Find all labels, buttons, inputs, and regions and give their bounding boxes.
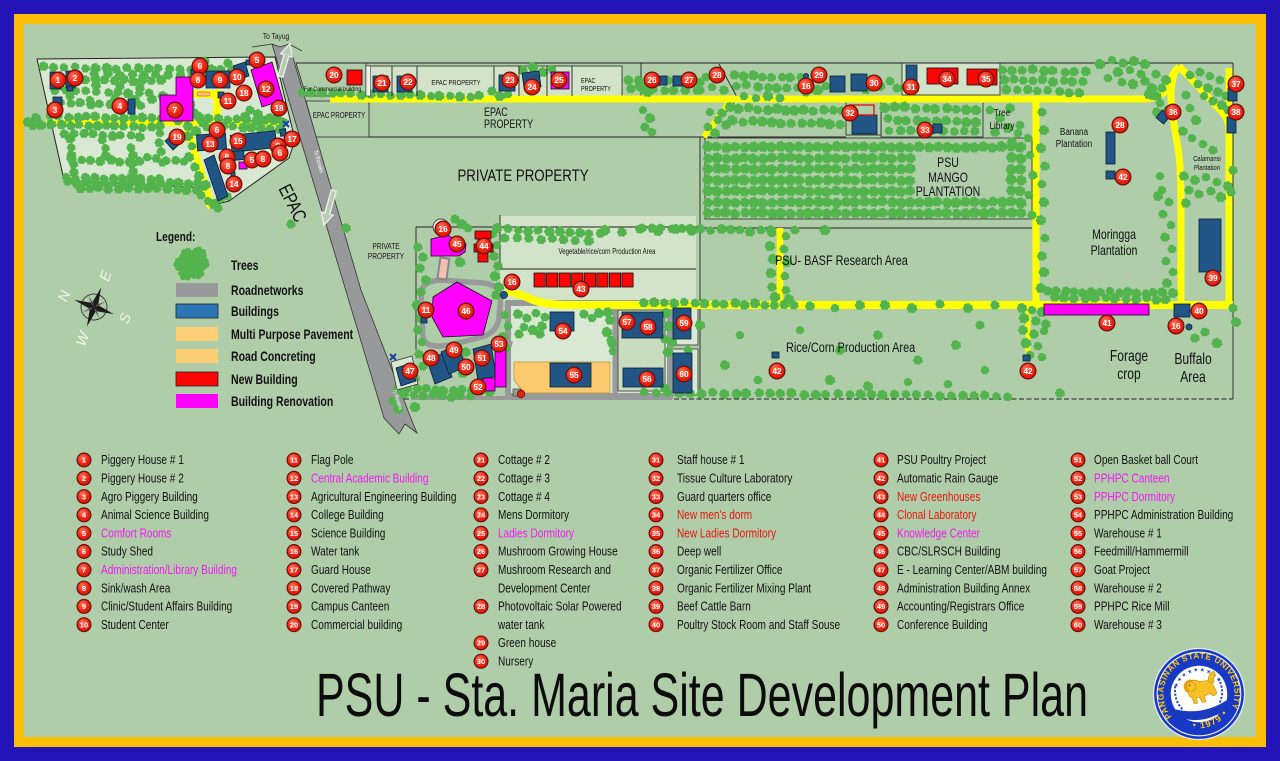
svg-text:6: 6 [215,125,220,135]
svg-text:PPHPC Rice Mill: PPHPC Rice Mill [1094,601,1169,614]
svg-text:3: 3 [82,492,86,501]
svg-text:5: 5 [250,155,255,165]
svg-text:56: 56 [1074,547,1082,556]
svg-text:Deep well: Deep well [677,546,721,559]
svg-text:Student Center: Student Center [101,619,169,632]
svg-text:Science Building: Science Building [311,527,385,540]
svg-text:32: 32 [845,108,855,118]
svg-text:35: 35 [652,529,661,538]
svg-text:56: 56 [642,374,652,384]
svg-text:28: 28 [477,602,485,611]
svg-text:34: 34 [652,511,661,520]
svg-text:Roadnetworks: Roadnetworks [231,283,304,299]
svg-text:Moringga: Moringga [1092,227,1136,243]
svg-text:29: 29 [477,639,485,648]
svg-text:42: 42 [1118,172,1128,182]
svg-text:38: 38 [652,584,660,593]
svg-text:Clinic/Student Affairs Buildin: Clinic/Student Affairs Building [101,601,232,614]
svg-text:PPHPC Dormitory: PPHPC Dormitory [1094,491,1175,504]
svg-text:16: 16 [290,547,298,556]
svg-text:Warehouse # 2: Warehouse # 2 [1094,582,1162,595]
svg-text:33: 33 [652,492,660,501]
svg-text:57: 57 [1074,566,1082,575]
svg-text:8: 8 [196,75,201,85]
svg-text:47: 47 [877,566,885,575]
svg-text:45: 45 [877,529,886,538]
svg-text:Tree: Tree [994,106,1011,118]
svg-text:PROPERTY: PROPERTY [581,85,612,93]
svg-text:37: 37 [1231,79,1241,89]
svg-text:Agricultural Engineering Build: Agricultural Engineering Building [311,491,456,504]
svg-text:37: 37 [652,566,660,575]
svg-text:15: 15 [233,136,243,146]
svg-text:Piggery House # 2: Piggery House # 2 [101,473,184,486]
svg-text:Plantation: Plantation [1194,164,1220,172]
svg-text:Vegetable/rice/corn Production: Vegetable/rice/corn Production Area [559,248,656,256]
svg-text:50: 50 [461,362,471,372]
svg-text:26: 26 [477,547,485,556]
svg-text:58: 58 [1074,584,1082,593]
svg-text:water tank: water tank [497,619,545,632]
svg-text:4: 4 [118,101,123,111]
svg-text:Rice/Corn Production Area: Rice/Corn Production Area [786,340,915,356]
svg-text:36: 36 [652,547,660,556]
svg-text:College Building: College Building [311,509,384,522]
svg-text:PSU - Sta. Maria Site Developm: PSU - Sta. Maria Site Development Plan [316,661,1088,729]
svg-text:2: 2 [73,73,78,83]
svg-text:Staff house # 1: Staff house # 1 [677,454,745,467]
svg-text:Mushroom Research and: Mushroom Research and [498,564,611,577]
svg-text:5: 5 [255,55,260,65]
svg-text:PLANTATION: PLANTATION [916,184,980,200]
svg-text:Campus Canteen: Campus Canteen [311,601,389,614]
svg-text:Animal Science Building: Animal Science Building [101,509,209,522]
svg-text:EPAC: EPAC [484,107,508,119]
svg-text:39: 39 [1208,273,1218,283]
svg-text:42: 42 [877,474,885,483]
svg-text:PROPERTY: PROPERTY [484,119,533,131]
svg-text:Covered Pathway: Covered Pathway [311,582,391,595]
svg-text:20: 20 [329,70,339,80]
svg-text:Piggery House # 1: Piggery House # 1 [101,454,184,467]
svg-text:24: 24 [477,511,486,520]
svg-text:PRIVATE: PRIVATE [372,241,399,251]
svg-text:28: 28 [712,70,722,80]
svg-text:Central Academic Building: Central Academic Building [311,473,428,486]
svg-text:17: 17 [290,566,298,575]
svg-text:Sink/wash Area: Sink/wash Area [101,582,171,595]
svg-text:Green house: Green house [498,637,556,650]
svg-text:New Building: New Building [231,372,298,388]
svg-text:Organic Fertilizer Office: Organic Fertilizer Office [677,564,783,577]
svg-text:12: 12 [290,474,298,483]
svg-text:6: 6 [82,547,86,556]
svg-text:7: 7 [82,566,86,575]
svg-text:15: 15 [290,529,299,538]
svg-text:Road Concreting: Road Concreting [231,349,316,365]
svg-text:13: 13 [290,492,298,501]
svg-text:PRIVATE PROPERTY: PRIVATE PROPERTY [457,167,588,186]
svg-text:48: 48 [426,353,436,363]
svg-text:8: 8 [261,154,266,164]
svg-text:55: 55 [569,370,579,380]
svg-text:E - Learning Center/ABM buildi: E - Learning Center/ABM building [897,564,1047,577]
svg-text:Commercial building: Commercial building [311,619,402,632]
svg-text:Administration/Library Buildin: Administration/Library Building [101,564,237,577]
svg-text:3: 3 [53,105,58,115]
svg-text:Comfort Rooms: Comfort Rooms [101,527,172,540]
svg-text:32: 32 [652,474,660,483]
svg-text:Guard quarters office: Guard quarters office [677,491,771,504]
svg-text:42: 42 [1023,366,1033,376]
svg-text:CBC/SLRSCH Building: CBC/SLRSCH Building [897,546,1000,559]
svg-text:16: 16 [507,277,517,287]
svg-text:Building Renovation: Building Renovation [231,394,333,410]
svg-text:Warehouse # 3: Warehouse # 3 [1094,619,1162,632]
svg-text:28: 28 [1115,120,1125,130]
svg-text:48: 48 [877,584,885,593]
svg-text:Cottage # 2: Cottage # 2 [498,454,550,467]
svg-text:53: 53 [1074,492,1082,501]
svg-text:PPHPC Canteen: PPHPC Canteen [1094,473,1170,486]
svg-text:New Ladies Dormitory: New Ladies Dormitory [677,527,776,540]
svg-text:35: 35 [981,74,991,84]
svg-text:Goat Project: Goat Project [1094,564,1151,577]
svg-text:44: 44 [479,241,489,251]
svg-text:20: 20 [290,620,298,629]
svg-text:25: 25 [477,529,486,538]
svg-text:Cottage # 3: Cottage # 3 [498,473,550,486]
svg-text:34: 34 [942,74,952,84]
svg-text:52: 52 [1074,474,1082,483]
svg-text:6: 6 [278,148,283,158]
svg-text:Photovoltaic Solar Powered: Photovoltaic Solar Powered [498,601,622,614]
svg-text:Conference Building: Conference Building [897,619,988,632]
svg-text:26: 26 [647,75,657,85]
svg-text:Feedmill/Hammermill: Feedmill/Hammermill [1094,546,1189,559]
svg-text:19: 19 [290,602,298,611]
svg-text:22: 22 [477,474,485,483]
svg-text:40: 40 [652,620,660,629]
svg-text:18: 18 [290,584,298,593]
svg-text:55: 55 [1074,529,1083,538]
svg-text:60: 60 [679,369,689,379]
svg-text:Knowledge Center: Knowledge Center [897,527,980,540]
svg-text:Automatic Rain Gauge: Automatic Rain Gauge [897,473,998,486]
svg-text:Buildings: Buildings [231,304,279,320]
svg-text:41: 41 [1102,318,1112,328]
svg-text:10: 10 [80,620,88,629]
svg-text:41: 41 [877,456,886,465]
svg-text:New Greenhouses: New Greenhouses [897,491,981,504]
svg-text:38: 38 [1231,107,1241,117]
svg-text:16: 16 [438,224,448,234]
svg-text:42: 42 [772,366,782,376]
svg-text:51: 51 [1074,456,1083,465]
svg-text:45: 45 [452,239,462,249]
svg-text:60: 60 [1074,620,1082,629]
svg-text:24: 24 [527,82,537,92]
svg-text:Plantation: Plantation [1056,137,1092,149]
svg-text:46: 46 [461,306,471,316]
svg-text:11: 11 [290,456,299,465]
svg-text:43: 43 [576,284,586,294]
svg-text:Water tank: Water tank [311,546,360,559]
svg-text:PPHPC Administration Building: PPHPC Administration Building [1094,509,1233,522]
svg-text:53: 53 [494,339,504,349]
svg-text:31: 31 [652,456,661,465]
svg-text:13: 13 [205,139,215,149]
svg-text:49: 49 [449,345,459,355]
svg-text:Mushroom Growing House: Mushroom Growing House [498,546,618,559]
svg-text:Development Center: Development Center [498,582,590,595]
svg-text:Cottage # 4: Cottage # 4 [498,491,550,504]
svg-text:To Tayug: To Tayug [263,31,289,41]
svg-text:51: 51 [477,353,487,363]
svg-text:54: 54 [558,326,568,336]
svg-text:New men's dorm: New men's dorm [677,509,752,522]
svg-text:Open Basket ball Court: Open Basket ball Court [1094,454,1199,467]
svg-text:Guard House: Guard House [311,564,371,577]
svg-text:Trees: Trees [231,258,259,274]
svg-text:For Commercial building: For Commercial building [304,85,361,93]
svg-text:Legend:: Legend: [156,230,195,244]
svg-text:36: 36 [1168,107,1178,117]
svg-text:18: 18 [239,88,249,98]
svg-text:8: 8 [82,584,86,593]
svg-text:30: 30 [869,78,879,88]
svg-text:Multi Purpose Pavement: Multi Purpose Pavement [231,327,353,343]
svg-text:Accounting/Registrars Office: Accounting/Registrars Office [897,601,1024,614]
svg-text:Warehouse # 1: Warehouse # 1 [1094,527,1162,540]
svg-text:22: 22 [403,77,413,87]
svg-text:PSU- BASF Research Area: PSU- BASF Research Area [775,253,908,269]
svg-text:8: 8 [226,161,231,171]
svg-text:EPAC PROPERTY: EPAC PROPERTY [431,79,481,87]
svg-text:Poultry Stock Room and Staff S: Poultry Stock Room and Staff Souse [677,619,840,632]
svg-text:58: 58 [643,322,653,332]
svg-text:Banana: Banana [1060,125,1089,137]
svg-text:7: 7 [173,105,178,115]
svg-text:12: 12 [261,84,271,94]
svg-text:23: 23 [505,75,515,85]
svg-text:Area: Area [1180,368,1206,386]
svg-text:Agro Piggery Building: Agro Piggery Building [101,491,198,504]
svg-text:29: 29 [814,70,824,80]
svg-text:Flag Pole: Flag Pole [311,454,354,467]
svg-text:10: 10 [232,72,242,82]
svg-text:9: 9 [218,75,223,85]
svg-text:PSU Poultry Project: PSU Poultry Project [897,454,987,467]
svg-text:Study Shed: Study Shed [101,546,153,559]
svg-text:Ladies Dormitory: Ladies Dormitory [498,527,574,540]
svg-text:Beef Cattle Barn: Beef Cattle Barn [677,601,751,614]
svg-text:50: 50 [877,620,885,629]
svg-text:Calamansi: Calamansi [1193,155,1221,163]
svg-text:21: 21 [377,78,387,88]
svg-text:57: 57 [622,317,632,327]
svg-text:54: 54 [1074,511,1083,520]
svg-text:1: 1 [56,75,61,85]
svg-text:46: 46 [877,547,885,556]
svg-text:47: 47 [405,366,415,376]
svg-text:Administration Building Annex: Administration Building Annex [897,582,1030,595]
svg-text:2: 2 [82,474,86,483]
svg-text:59: 59 [679,318,689,328]
svg-text:39: 39 [652,602,660,611]
svg-text:31: 31 [906,82,916,92]
svg-text:16: 16 [1171,321,1181,331]
svg-text:14: 14 [290,511,299,520]
svg-text:44: 44 [877,511,886,520]
svg-text:18: 18 [274,103,284,113]
svg-text:PSU: PSU [937,155,959,171]
svg-text:Mens Dormitory: Mens Dormitory [498,509,569,522]
svg-text:59: 59 [1074,602,1082,611]
svg-text:14: 14 [229,179,239,189]
svg-text:PROPERTY: PROPERTY [368,251,404,261]
svg-text:Organic Fertilizer Mixing Plan: Organic Fertilizer Mixing Plant [677,582,812,595]
svg-text:9: 9 [82,602,86,611]
svg-text:21: 21 [477,456,486,465]
svg-text:19: 19 [172,132,182,142]
svg-text:16: 16 [801,81,811,91]
svg-text:Plantation: Plantation [1091,243,1138,259]
svg-text:EPAC: EPAC [581,77,596,85]
svg-text:Clonal Laboratory: Clonal Laboratory [897,509,977,522]
svg-text:33: 33 [920,125,930,135]
svg-text:Tissue Culture Laboratory: Tissue Culture Laboratory [677,473,793,486]
svg-text:11: 11 [422,305,431,315]
svg-text:17: 17 [287,134,297,144]
svg-text:27: 27 [477,566,485,575]
svg-text:Forage: Forage [1110,347,1148,365]
svg-text:Library: Library [989,119,1014,131]
svg-text:Buffalo: Buffalo [1174,350,1212,368]
svg-text:crop: crop [1117,365,1141,383]
svg-text:23: 23 [477,492,485,501]
svg-text:52: 52 [473,382,483,392]
svg-text:11: 11 [224,96,233,106]
svg-text:27: 27 [684,75,694,85]
svg-text:EPAC PROPERTY: EPAC PROPERTY [313,111,366,120]
svg-text:43: 43 [877,492,885,501]
svg-text:40: 40 [1194,306,1204,316]
svg-text:25: 25 [554,75,564,85]
svg-text:6: 6 [198,61,203,71]
svg-text:49: 49 [877,602,885,611]
